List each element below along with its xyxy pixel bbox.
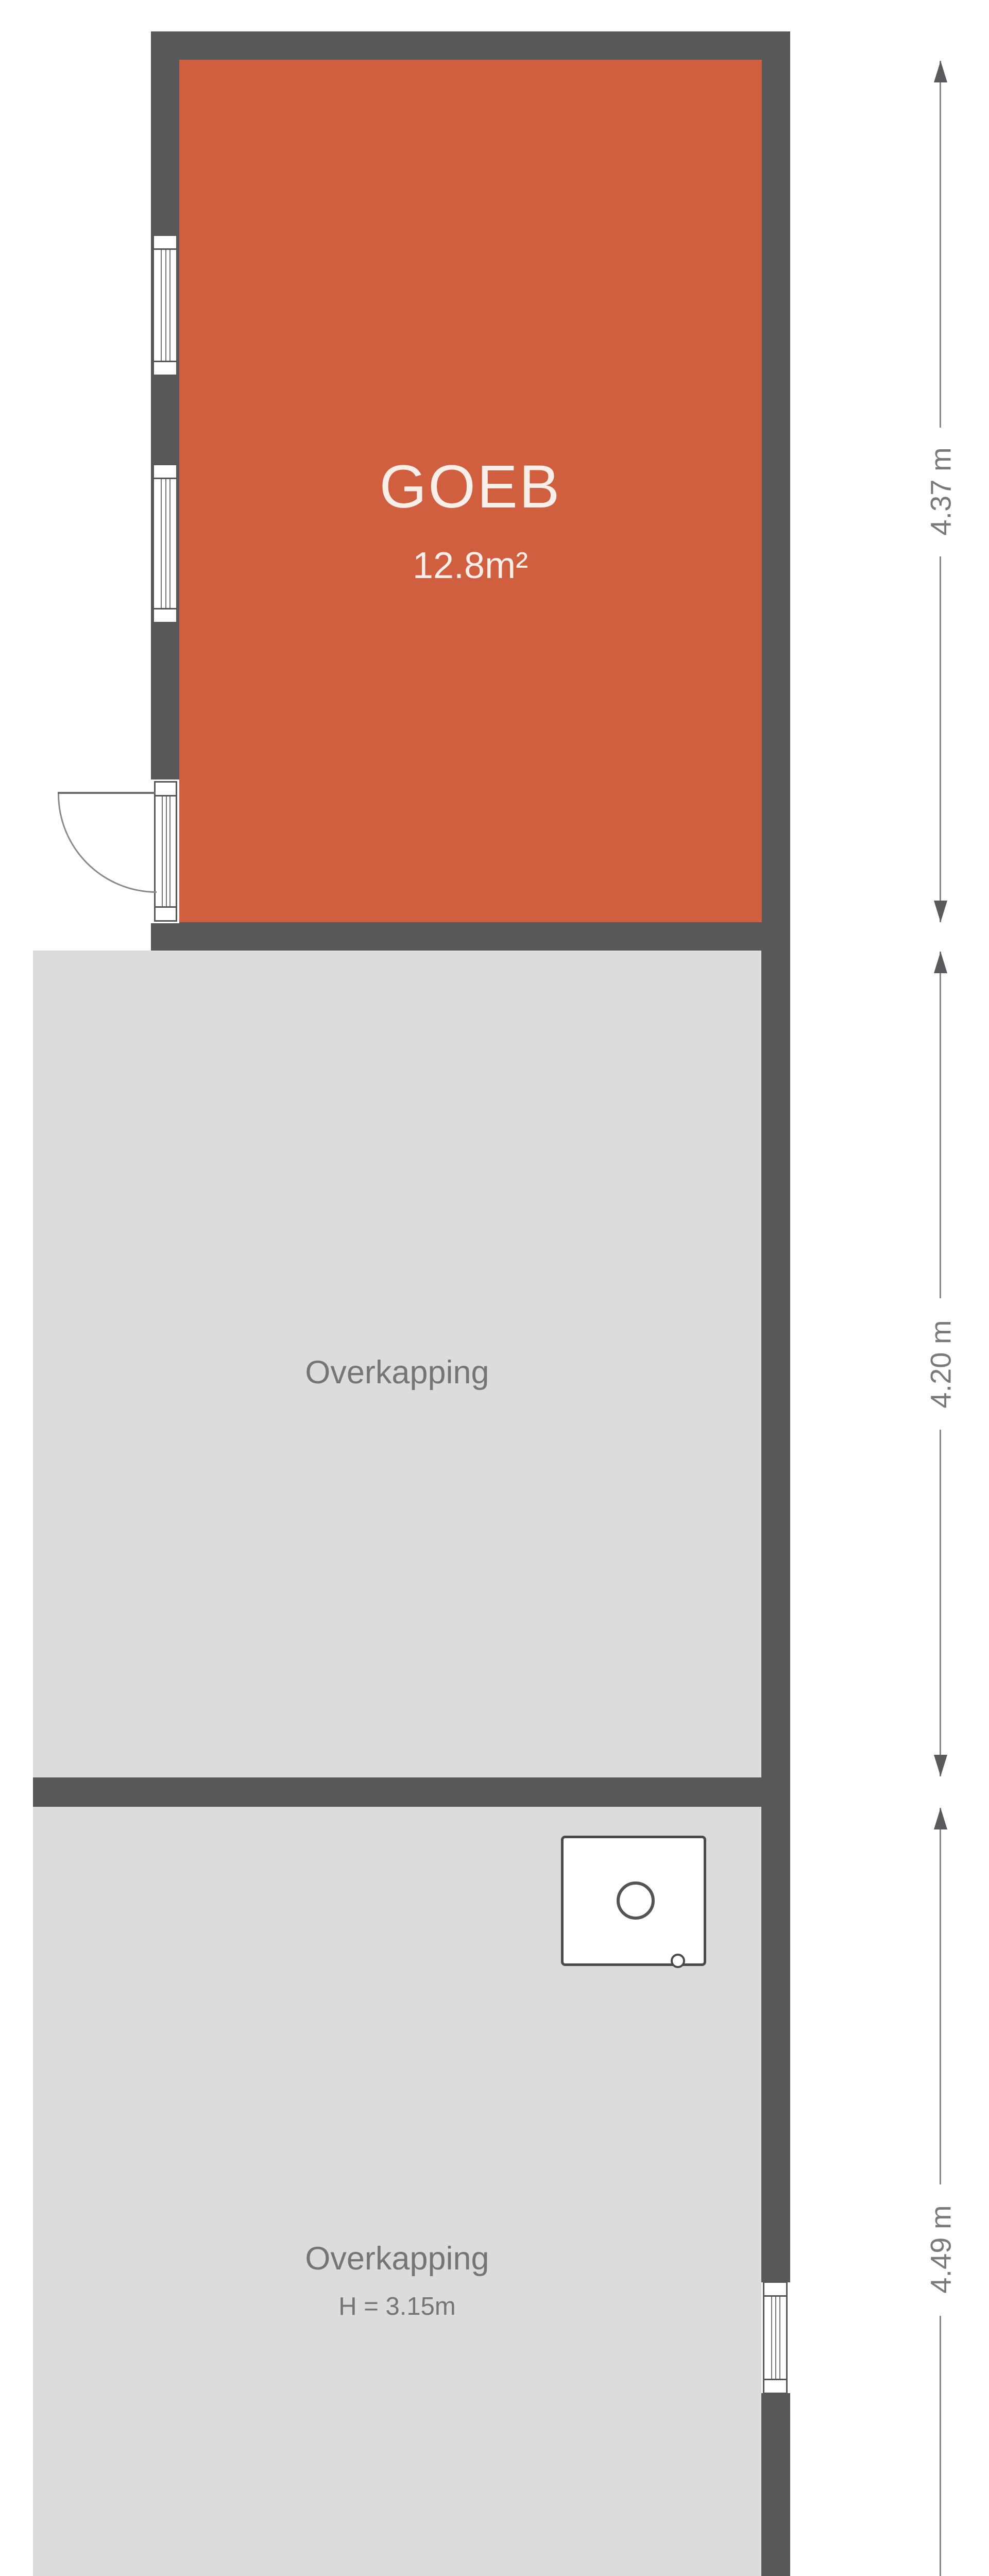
dimension-line (940, 2316, 941, 2576)
divider-wall (33, 1777, 790, 1807)
stove-notch-icon (671, 1954, 685, 1968)
right-wall-upper (761, 951, 790, 2282)
arrow-up-icon (934, 952, 947, 973)
stove-circle-icon (617, 1882, 655, 1920)
dimension-line (940, 1808, 941, 2184)
door-leaf-line (58, 792, 156, 794)
arrow-down-icon (934, 901, 947, 922)
door-swing-arc-icon (58, 794, 157, 893)
dimension-label-overkapping-2: 4.49 m (924, 2205, 958, 2293)
dimension-line (940, 61, 941, 428)
window-glyph (152, 234, 178, 376)
dimension-label-overkapping-1: 4.20 m (924, 1320, 958, 1408)
dimension-line (940, 952, 941, 1298)
room-goeb-area-label: 12.8m² (413, 545, 528, 587)
window-glyph (763, 2281, 788, 2394)
dimension-line (940, 556, 941, 922)
room-goeb-label: GOEB (380, 452, 561, 522)
dimension-line (940, 1430, 941, 1776)
glazed-door-panel (154, 781, 177, 922)
floorplan-canvas: GOEB 12.8m² Overkapping Overkapping H = … (0, 0, 989, 2576)
overkapping-2-height-label: H = 3.15m (338, 2292, 455, 2321)
window-glyph (152, 464, 178, 623)
stove-icon (561, 1836, 706, 1966)
overkapping-1-label: Overkapping (305, 1354, 489, 1391)
arrow-up-icon (934, 61, 947, 82)
arrow-down-icon (934, 1755, 947, 1776)
arrow-up-icon (934, 1808, 947, 1829)
right-wall-lower (761, 2393, 790, 2576)
dimension-label-goeb: 4.37 m (924, 447, 958, 535)
overkapping-2-label: Overkapping (305, 2240, 489, 2277)
